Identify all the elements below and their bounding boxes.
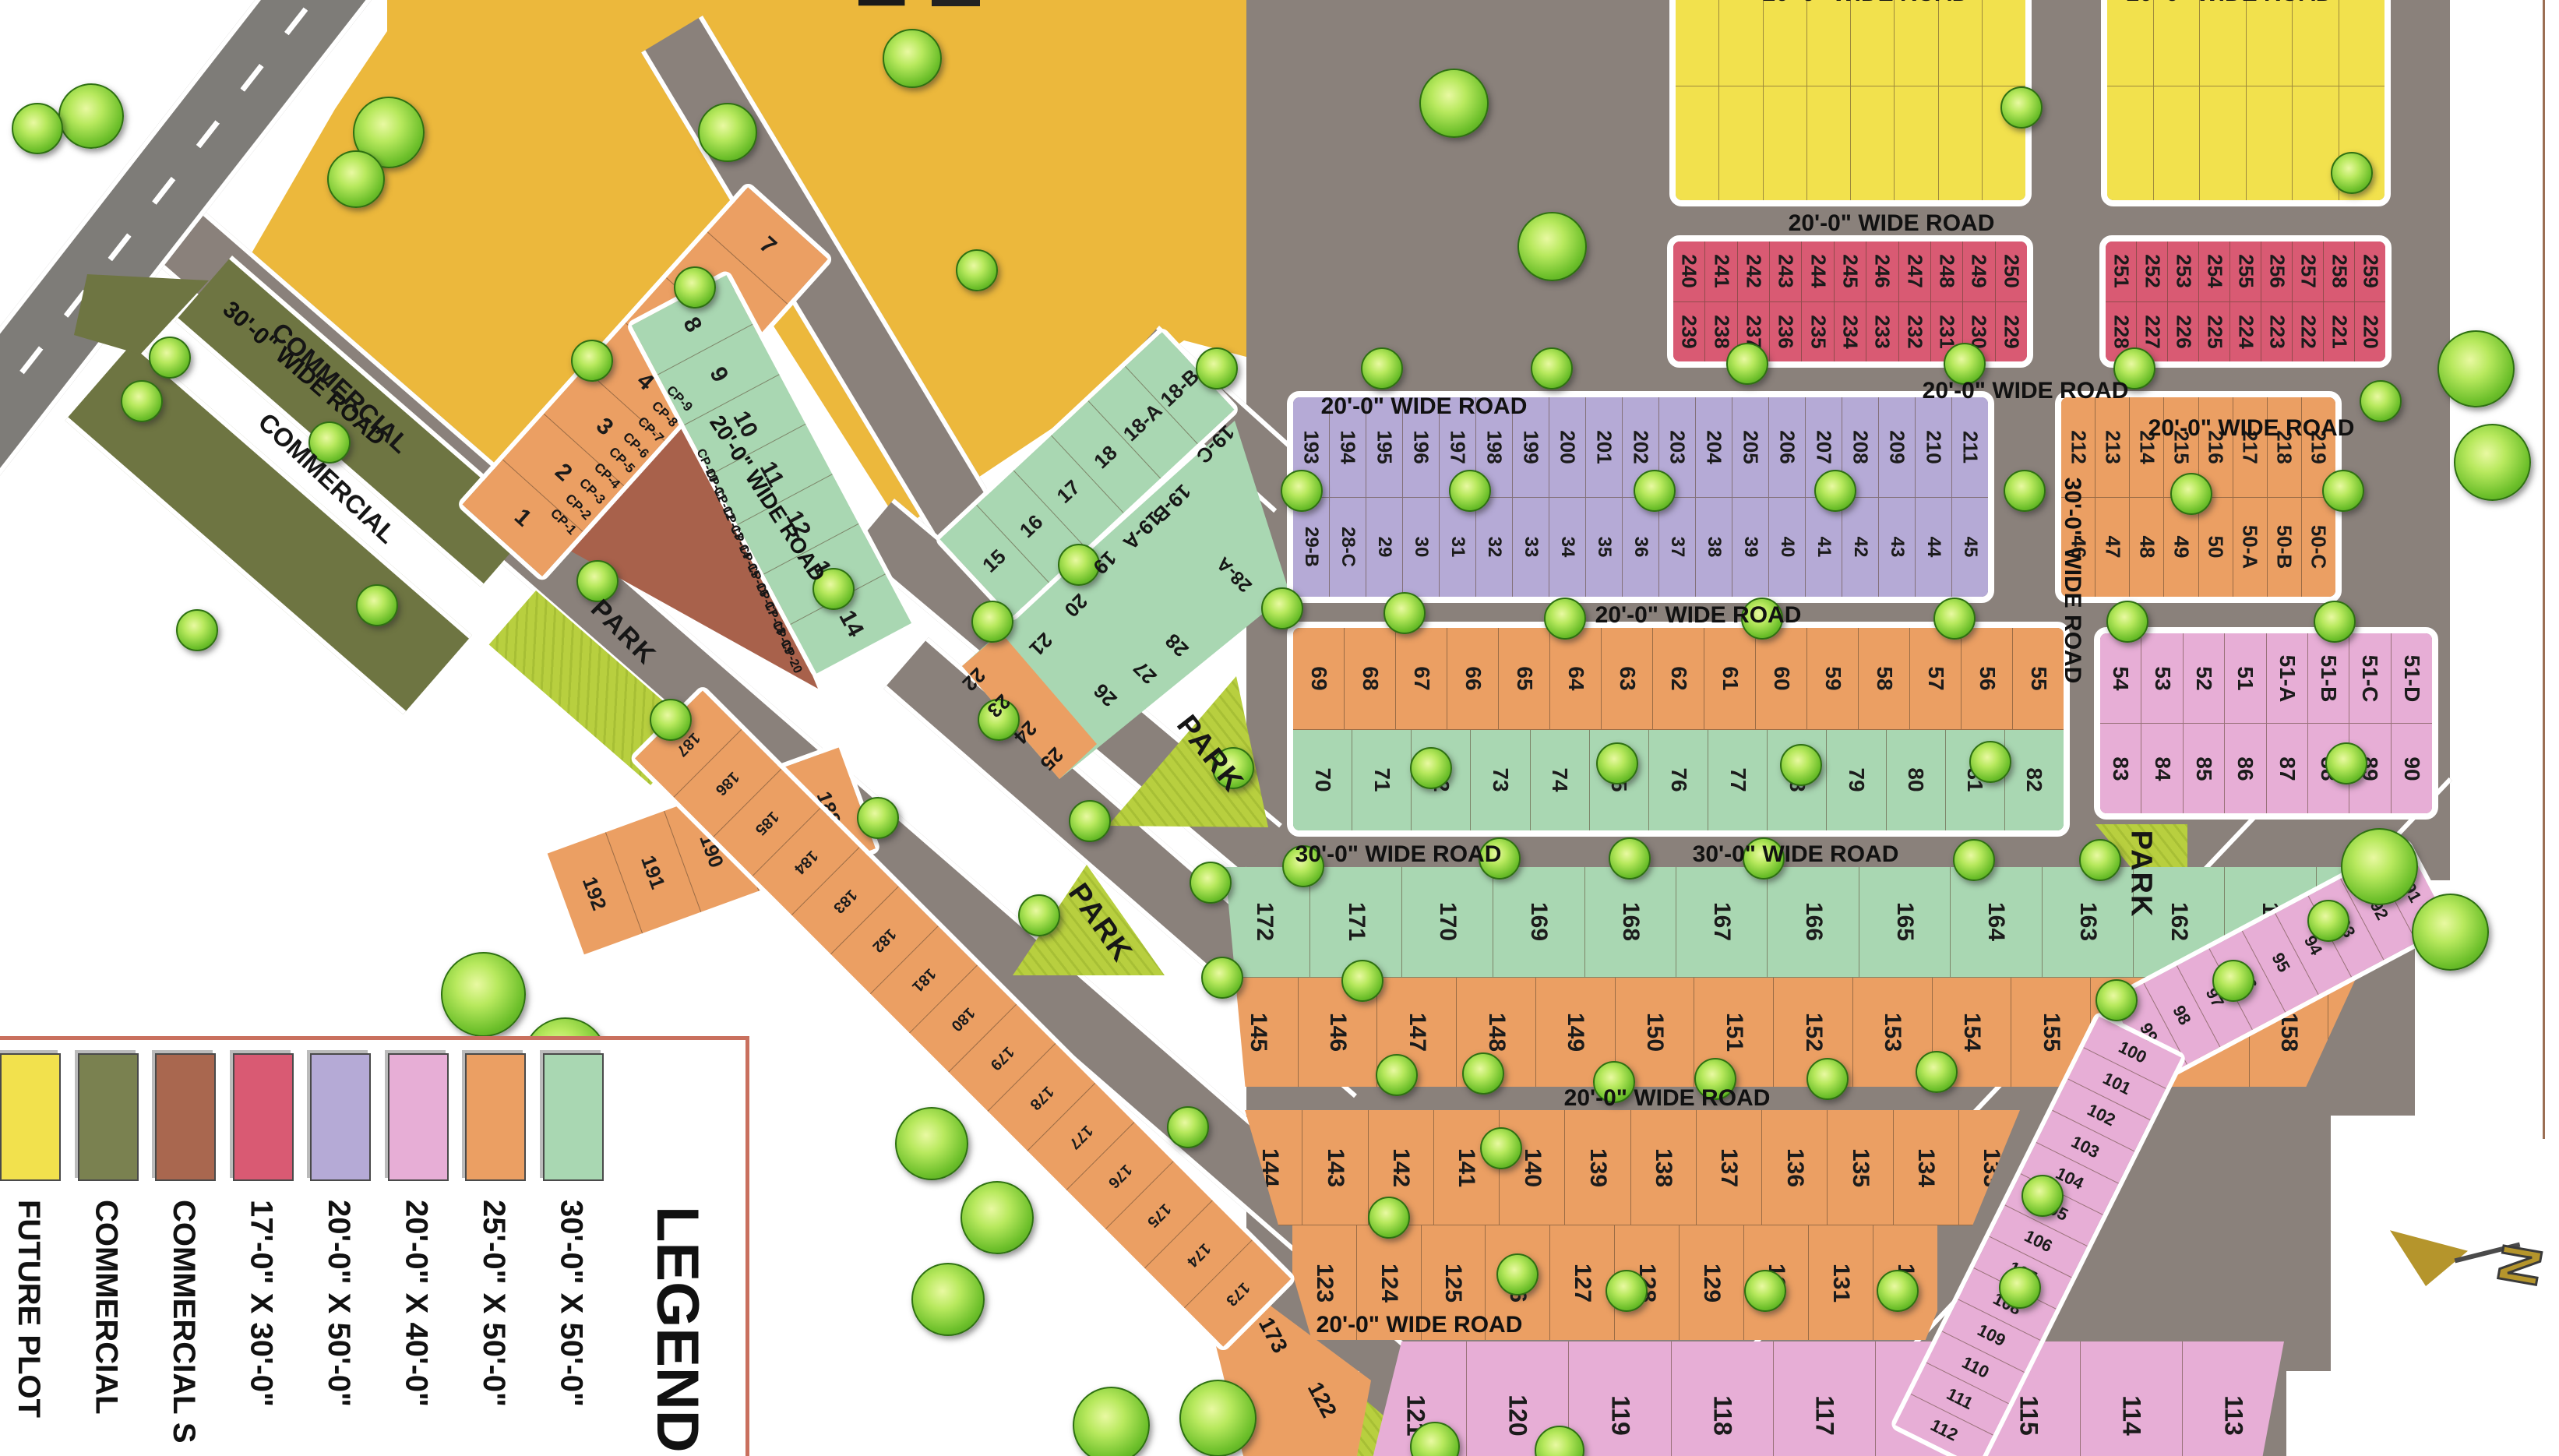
plot-number: 168 (1617, 902, 1644, 941)
plot-number: 71 (1369, 768, 1394, 792)
tree-icon (2307, 900, 2349, 942)
plot-number: 84 (2150, 756, 2175, 781)
plot-67: 67 (1396, 628, 1447, 729)
plot-number: 74 (1547, 768, 1572, 792)
plot-number: 166 (1800, 902, 1827, 941)
plot-number: 101 (2099, 1069, 2134, 1100)
tree-icon (1999, 1267, 2041, 1309)
plot-29-B: 29-B (1293, 498, 1330, 598)
plot-201: 201 (1586, 397, 1623, 497)
plot-217: 217 (2233, 397, 2268, 497)
tree-icon (1201, 957, 1243, 999)
plot-number: 202 (1629, 430, 1653, 464)
plot-235: 235 (1802, 302, 1834, 362)
plot-number: 226 (2171, 315, 2195, 348)
plot-number: 70 (1310, 768, 1335, 792)
tree-icon (1368, 1197, 1410, 1239)
park-label: PARK (2124, 830, 2158, 918)
plot-number: 162 (2166, 902, 2192, 941)
tree-icon (2004, 470, 2046, 512)
tree-icon (1196, 347, 1238, 390)
north-label: N (2484, 1239, 2554, 1290)
plot-82: 82 (2005, 730, 2064, 831)
tree-icon (895, 1107, 968, 1180)
plot-number: 180 (947, 1003, 978, 1035)
road-label: 20'-0" WIDE ROAD (1595, 602, 1802, 629)
plot-number: 223 (2265, 315, 2289, 348)
plot-number: 117 (1810, 1395, 1838, 1436)
plot-blank (1807, 86, 1851, 201)
plot-number: 178 (1026, 1081, 1057, 1112)
plot-blank (1719, 0, 1763, 86)
plot-251: 251 (2106, 241, 2137, 301)
plot-number: 165 (1891, 902, 1918, 941)
plot-number: 224 (2233, 315, 2258, 348)
plot-blank (1764, 0, 1807, 86)
drawing-border (2543, 0, 2545, 1139)
plot-number: 220 (2358, 315, 2382, 348)
plot-blank (2247, 86, 2293, 201)
plot-117: 117 (1774, 1341, 1876, 1456)
plot-number: 174 (1183, 1239, 1214, 1270)
legend-swatch (310, 1053, 371, 1181)
tree-icon (1953, 839, 1995, 881)
plot-number: 256 (2265, 255, 2289, 288)
tree-icon (1361, 347, 1403, 390)
plot-number: 59 (1821, 666, 1845, 690)
plot-number: 238 (1709, 315, 1733, 348)
plot-number: 241 (1709, 255, 1733, 288)
plot-255: 255 (2230, 241, 2261, 301)
plot-number: 185 (751, 807, 782, 838)
plot-number: 183 (830, 885, 861, 916)
plot-number: 173 (1222, 1278, 1253, 1309)
plot-244: 244 (1802, 241, 1834, 301)
legend-item-label: 20'-0" X 40'-0" (399, 1200, 434, 1456)
plot-number: 247 (1902, 255, 1926, 288)
plot-76: 76 (1649, 730, 1708, 831)
plot-number: 43 (1886, 537, 1908, 558)
tree-icon (176, 609, 218, 651)
plot-number: 235 (1806, 315, 1830, 348)
tree-icon (1419, 69, 1489, 138)
plot-number: 248 (1935, 255, 1959, 288)
tree-icon (1933, 598, 1976, 640)
plot-131: 131 (1809, 1225, 1873, 1340)
plot-44: 44 (1916, 498, 1952, 598)
plot-30: 30 (1403, 498, 1440, 598)
plot-number: 115 (2014, 1395, 2043, 1436)
road-label: 20'-0" WIDE ROAD (1321, 393, 1528, 420)
plot-127: 127 (1550, 1225, 1615, 1340)
tree-icon (857, 797, 899, 839)
plot-number: 73 (1488, 768, 1513, 792)
plot-number: 163 (2074, 902, 2101, 941)
tree-icon (327, 150, 385, 208)
plot-54: 54 (2100, 633, 2141, 723)
plot-number: 18-A (1119, 399, 1167, 446)
plot-246: 246 (1866, 241, 1898, 301)
plot-number: 60 (1769, 666, 1794, 690)
plot-56: 56 (1962, 628, 2013, 729)
plot-74: 74 (1531, 730, 1590, 831)
plot-blank (1983, 0, 2025, 86)
plot-number: 34 (1556, 537, 1578, 558)
plot-number: 3 (590, 413, 618, 441)
tree-icon (2454, 424, 2531, 501)
plot-number: 50 (2204, 536, 2228, 559)
plot-61: 61 (1704, 628, 1756, 729)
plot-number: 56 (1975, 666, 2000, 690)
tree-icon (2360, 380, 2402, 422)
plot-249: 249 (1963, 241, 1995, 301)
plot-205: 205 (1732, 397, 1769, 497)
plot-number: 170 (1434, 902, 1461, 941)
plot-163: 163 (2043, 867, 2134, 977)
plot-number: 51-A (2275, 654, 2300, 702)
plot-number: 254 (2202, 255, 2226, 288)
plot-number: 249 (1967, 255, 1991, 288)
plot-221: 221 (2324, 302, 2355, 362)
tree-icon (1383, 592, 1426, 634)
plot-number: 193 (1299, 430, 1324, 464)
plot-40: 40 (1769, 498, 1806, 598)
plot-41: 41 (1806, 498, 1842, 598)
plot-number: 200 (1556, 430, 1580, 464)
plot-141: 141 (1434, 1110, 1500, 1225)
plot-number: 147 (1404, 1013, 1430, 1052)
plot-number: 233 (1870, 315, 1895, 348)
plot-233: 233 (1866, 302, 1898, 362)
plot-220: 220 (2355, 302, 2385, 362)
title-fragment-bar (932, 0, 980, 6)
plot-224: 224 (2230, 302, 2261, 362)
plot-number: 199 (1519, 430, 1543, 464)
plot-number: 257 (2296, 255, 2320, 288)
plot-167: 167 (1676, 867, 1768, 977)
tree-icon (971, 601, 1013, 643)
plot-211: 211 (1952, 397, 1988, 497)
plot-number: 258 (2327, 255, 2351, 288)
legend-item-label: COMMERCIAL S (166, 1200, 201, 1456)
plot-number: 61 (1718, 666, 1743, 690)
plot-number: 205 (1739, 430, 1763, 464)
tree-icon (1376, 1054, 1418, 1096)
plot-number: 68 (1358, 666, 1383, 690)
plot-57: 57 (1910, 628, 1962, 729)
plot-51-B: 51-B (2308, 633, 2349, 723)
plot-blank (2293, 86, 2339, 201)
plot-119: 119 (1569, 1341, 1671, 1456)
plot-138: 138 (1631, 1110, 1697, 1225)
plot-114: 114 (2081, 1341, 2183, 1456)
tree-icon (2437, 330, 2515, 407)
plot-60: 60 (1756, 628, 1807, 729)
plot-number: 231 (1935, 315, 1959, 348)
north-arrow-icon (2390, 1225, 2468, 1286)
plot-135: 135 (1828, 1110, 1893, 1225)
legend-swatch (233, 1053, 294, 1181)
plot-blank (1895, 0, 1938, 86)
plot-number: 8 (677, 313, 707, 337)
tree-icon (2322, 470, 2364, 512)
plot-245: 245 (1835, 241, 1866, 301)
plot-139: 139 (1565, 1110, 1630, 1225)
plot-number: 100 (2115, 1037, 2149, 1068)
tree-icon (2212, 960, 2254, 1002)
plot-number: 49 (2169, 536, 2193, 559)
plot-number: 236 (1774, 315, 1798, 348)
plot-number: 109 (1974, 1320, 2008, 1352)
plot-229: 229 (1996, 302, 2027, 362)
plot-number: 113 (2219, 1395, 2247, 1436)
plot-number: 66 (1461, 666, 1486, 690)
plot-45: 45 (1952, 498, 1988, 598)
plot-number: 90 (2399, 756, 2424, 781)
tree-icon (1606, 1270, 1648, 1312)
future-block-a (1669, 0, 2032, 206)
plot-number: 138 (1650, 1148, 1676, 1186)
plot-63: 63 (1602, 628, 1653, 729)
tree-icon (1069, 800, 1111, 842)
plot-number: 140 (1519, 1148, 1546, 1186)
plot-number: 82 (2021, 768, 2046, 792)
plot-64: 64 (1550, 628, 1602, 729)
plot-blank (1719, 86, 1763, 201)
plot-number: 76 (1666, 768, 1691, 792)
plot-number: 184 (791, 846, 822, 877)
plot-35: 35 (1586, 498, 1623, 598)
plot-number: 239 (1677, 315, 1701, 348)
plot-number: 246 (1870, 255, 1895, 288)
plot-number: 45 (1959, 537, 1981, 558)
plot-number: 209 (1885, 430, 1909, 464)
tree-icon (1877, 1270, 1919, 1312)
plot-number: 198 (1482, 430, 1507, 464)
plot-number: 139 (1584, 1148, 1611, 1186)
plot-number: 65 (1512, 666, 1537, 690)
plot-32: 32 (1476, 498, 1513, 598)
plot-number: 141 (1453, 1148, 1479, 1186)
plot-number: 41 (1813, 537, 1835, 558)
road-label: 20'-0" WIDE ROAD (1763, 0, 1969, 7)
tree-icon (1341, 960, 1383, 1002)
plot-55: 55 (2013, 628, 2064, 729)
plot-210: 210 (1916, 397, 1952, 497)
plot-69: 69 (1293, 628, 1345, 729)
plot-number: 182 (869, 925, 900, 956)
plot-34: 34 (1549, 498, 1586, 598)
plot-number: 229 (1999, 315, 2023, 348)
tree-icon (149, 337, 191, 379)
plot-80: 80 (1887, 730, 1946, 831)
legend-title: LEGEND (643, 1206, 711, 1453)
plot-number: 245 (1838, 255, 1862, 288)
plot-number: 28-C (1337, 527, 1359, 567)
plot-204: 204 (1696, 397, 1732, 497)
plot-37: 37 (1659, 498, 1696, 598)
tree-icon (2412, 894, 2489, 971)
plot-number: 142 (1387, 1148, 1414, 1186)
tree-icon (1517, 212, 1587, 281)
legend-swatch (78, 1053, 139, 1181)
tree-icon (356, 584, 398, 626)
tree-icon (576, 560, 619, 602)
plot-number: 15 (978, 545, 1010, 577)
plot-number: 83 (2108, 756, 2133, 781)
plot-number: 251 (2109, 255, 2133, 288)
plot-number: 33 (1520, 537, 1542, 558)
plot-129: 129 (1680, 1225, 1744, 1340)
mid-orange-green-block: 6968676665646362616059585756557071727374… (1287, 622, 2070, 837)
legend-item-label: 30'-0" X 50'-0" (554, 1200, 589, 1456)
tree-icon (1496, 1253, 1539, 1296)
tree-icon (1916, 1051, 1958, 1093)
plot-number: 206 (1775, 430, 1799, 464)
plot-blank (1939, 0, 1983, 86)
plot-241: 241 (1705, 241, 1737, 301)
plot-number: 35 (1593, 537, 1615, 558)
plot-number: 29 (1373, 537, 1395, 558)
plot-number: 152 (1800, 1013, 1827, 1052)
plot-number: 204 (1702, 430, 1726, 464)
tree-icon (1261, 587, 1303, 629)
plot-number: 87 (2275, 756, 2300, 781)
plot-number: 124 (1376, 1263, 1402, 1302)
plot-90: 90 (2392, 724, 2432, 813)
plot-84: 84 (2141, 724, 2183, 813)
tree-icon (698, 103, 757, 162)
plot-number: 151 (1721, 1013, 1747, 1052)
plot-number: 67 (1409, 666, 1434, 690)
plot-170: 170 (1402, 867, 1493, 977)
plot-240: 240 (1673, 241, 1705, 301)
road-label: 30'-0" WIDE ROAD (1295, 841, 1502, 868)
plot-number: 51 (2233, 666, 2258, 690)
plot-number: 58 (1872, 666, 1897, 690)
plot-51-A: 51-A (2267, 633, 2308, 723)
plot-number: 232 (1902, 315, 1926, 348)
tree-icon (1780, 744, 1822, 786)
plot-number: 250 (1999, 255, 2023, 288)
plot-number: 181 (908, 964, 939, 995)
legend-swatch (155, 1053, 216, 1181)
plot-blank (2154, 86, 2201, 201)
tree-icon (1744, 1270, 1786, 1312)
plot-number: 69 (1306, 666, 1331, 690)
plot-number: 242 (1741, 255, 1765, 288)
plot-number: 111 (1944, 1384, 1976, 1414)
plot-number: 153 (1879, 1013, 1905, 1052)
plot-250: 250 (1996, 241, 2027, 301)
plot-50-C: 50-C (2302, 498, 2335, 598)
plot-52: 52 (2184, 633, 2225, 723)
plot-209: 209 (1879, 397, 1916, 497)
plot-243: 243 (1770, 241, 1802, 301)
road-label: 30'-0" WIDE ROAD (1693, 841, 1899, 868)
plot-137: 137 (1697, 1110, 1762, 1225)
plot-166: 166 (1768, 867, 1859, 977)
plot-number: 44 (1923, 537, 1944, 558)
plot-51: 51 (2225, 633, 2266, 723)
plot-number: 213 (2100, 430, 2124, 464)
plot-number: 227 (2140, 315, 2164, 348)
plot-169: 169 (1493, 867, 1584, 977)
tree-icon (911, 1263, 985, 1336)
plot-number: 42 (1849, 537, 1871, 558)
plot-number: 1 (509, 504, 536, 532)
plot-number: 53 (2150, 666, 2175, 690)
plot-number: 29-B (1300, 527, 1322, 567)
tree-icon (1190, 862, 1232, 904)
plot-218: 218 (2268, 397, 2302, 497)
plot-247: 247 (1899, 241, 1931, 301)
plot-257: 257 (2293, 241, 2324, 301)
plot-number: 221 (2327, 315, 2351, 348)
plot-blank (2293, 0, 2339, 86)
plot-50-A: 50-A (2233, 498, 2268, 598)
plot-number: 195 (1373, 430, 1397, 464)
plot-number: 207 (1812, 430, 1836, 464)
tree-icon (2325, 742, 2367, 784)
plot-200: 200 (1549, 397, 1586, 497)
plot-number: 16 (1015, 510, 1048, 543)
plot-143: 143 (1302, 1110, 1368, 1225)
plot-number: 77 (1725, 768, 1750, 792)
tree-icon (1167, 1106, 1209, 1148)
tree-icon (1726, 343, 1768, 385)
plot-53: 53 (2141, 633, 2183, 723)
plot-number: 103 (2068, 1131, 2103, 1162)
plot-number: 155 (2038, 1013, 2064, 1052)
plot-blank (2247, 0, 2293, 86)
road-label: 30'-0" WIDE ROAD (2059, 478, 2085, 684)
plot-blank (1807, 0, 1851, 86)
plot-number: 40 (1776, 537, 1798, 558)
legend-item-label: 17'-0" X 30'-0" (244, 1200, 279, 1456)
plot-223: 223 (2261, 302, 2293, 362)
plot-86: 86 (2225, 724, 2266, 813)
plot-242: 242 (1738, 241, 1770, 301)
plot-number: 112 (1927, 1415, 1961, 1445)
plot-number: 192 (577, 873, 612, 913)
plot-blank (1764, 86, 1807, 201)
tree-icon (1410, 747, 1452, 789)
plot-79: 79 (1827, 730, 1886, 831)
plot-168: 168 (1585, 867, 1676, 977)
plot-214: 214 (2130, 397, 2164, 497)
plot-number: 80 (1903, 768, 1928, 792)
plot-number: 114 (2117, 1395, 2145, 1436)
tree-icon (883, 29, 942, 88)
road-label: 20'-0" WIDE ROAD (2127, 0, 2333, 7)
tree-icon (1179, 1380, 1257, 1456)
plot-59: 59 (1807, 628, 1859, 729)
road-label: 20'-0" WIDE ROAD (1923, 378, 2129, 404)
tree-icon (674, 266, 716, 308)
plot-number: 118 (1708, 1395, 1736, 1436)
pink-block-51: 5453525151-A51-B51-C51-D8384858687888990 (2094, 627, 2438, 820)
plot-70: 70 (1293, 730, 1352, 831)
tree-icon (1073, 1387, 1150, 1456)
tree-icon (1596, 742, 1638, 784)
road-label: 20'-0" WIDE ROAD (2148, 415, 2355, 442)
plot-50: 50 (2199, 498, 2233, 598)
legend-item-label: 25'-0" X 50'-0" (476, 1200, 511, 1456)
plot-blank (2339, 0, 2385, 86)
plot-number: 36 (1630, 537, 1651, 558)
tree-icon (961, 1181, 1034, 1254)
